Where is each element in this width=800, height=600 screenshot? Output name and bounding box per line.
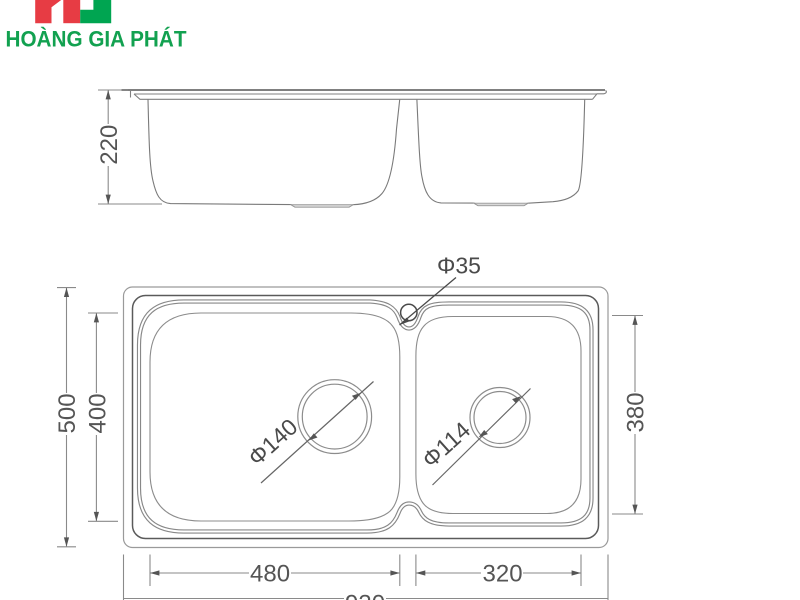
svg-text:320: 320 — [483, 561, 523, 588]
svg-text:480: 480 — [250, 561, 290, 588]
svg-text:380: 380 — [623, 392, 650, 432]
svg-text:500: 500 — [54, 393, 81, 433]
svg-text:220: 220 — [96, 125, 123, 165]
svg-text:400: 400 — [85, 393, 112, 433]
svg-text:HOÀNG GIA PHÁT: HOÀNG GIA PHÁT — [6, 26, 187, 51]
svg-text:930: 930 — [345, 591, 385, 600]
svg-text:Φ35: Φ35 — [437, 253, 481, 279]
